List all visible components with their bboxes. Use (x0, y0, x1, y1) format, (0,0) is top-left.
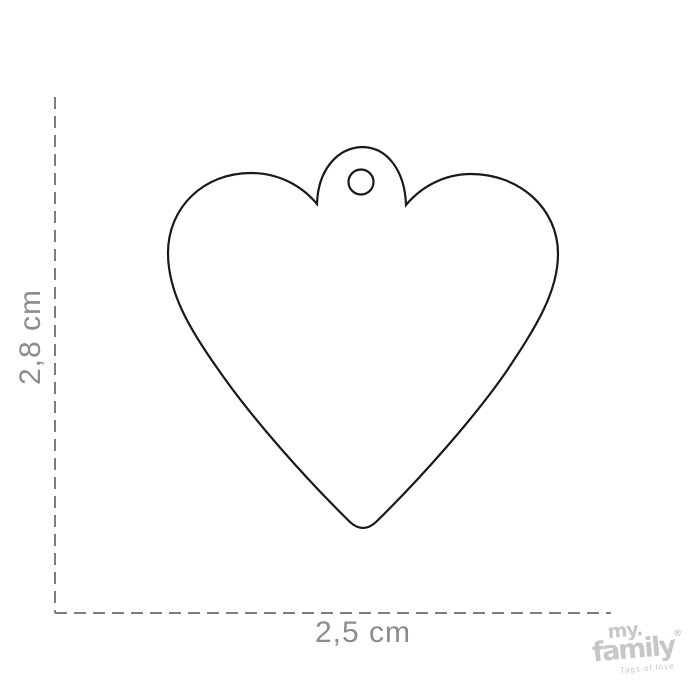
heart-tag-shape (168, 147, 558, 528)
logo-registered-mark: ® (673, 629, 683, 640)
width-dimension-label: 2,5 cm (315, 616, 411, 650)
dimension-diagram: 2,8 cm 2,5 cm my. family® Tags of love (0, 0, 700, 700)
tag-hole (349, 170, 374, 195)
height-dimension-label: 2,8 cm (14, 289, 48, 385)
diagram-canvas (0, 0, 700, 700)
brand-logo: my. family® Tags of love (590, 616, 698, 678)
